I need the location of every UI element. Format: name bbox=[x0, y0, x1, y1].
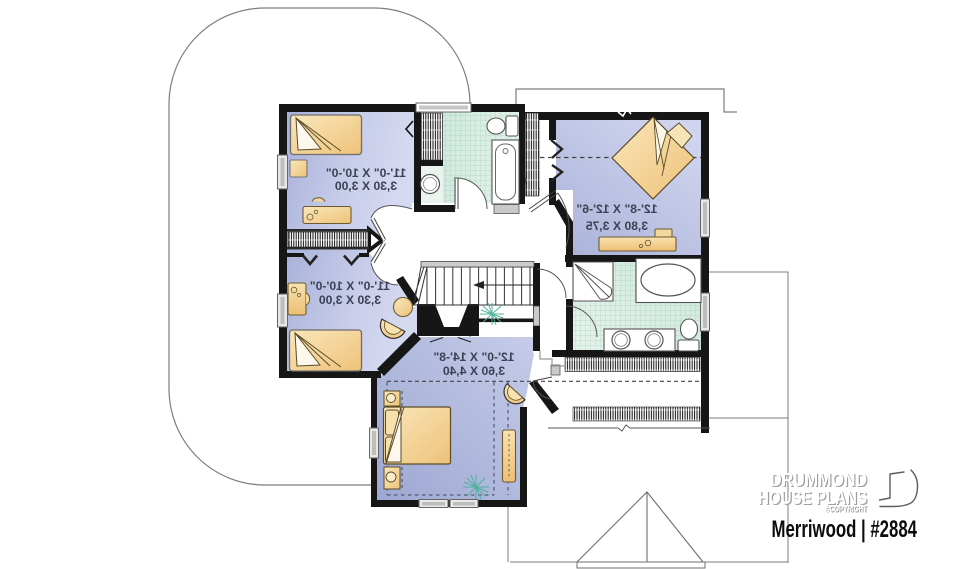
svg-text:Merriwood | #2884: Merriwood | #2884 bbox=[772, 516, 918, 543]
svg-text:3,60 X 4,40: 3,60 X 4,40 bbox=[443, 364, 506, 378]
svg-text:3,30 X 3,00: 3,30 X 3,00 bbox=[335, 179, 398, 193]
svg-text:11'-0" X 10'-0": 11'-0" X 10'-0" bbox=[326, 166, 406, 180]
svg-text:12'-8" X 12'-6": 12'-8" X 12'-6" bbox=[576, 202, 657, 216]
svg-text:3,30 X 3,00: 3,30 X 3,00 bbox=[319, 293, 382, 307]
svg-text:©COPYRIGHT: ©COPYRIGHT bbox=[825, 505, 867, 514]
svg-text:11'-0" X 10'-0": 11'-0" X 10'-0" bbox=[310, 279, 390, 293]
svg-text:12'-0" X 14'-8": 12'-0" X 14'-8" bbox=[433, 350, 514, 364]
svg-text:3,80 X 3,75: 3,80 X 3,75 bbox=[586, 219, 649, 233]
